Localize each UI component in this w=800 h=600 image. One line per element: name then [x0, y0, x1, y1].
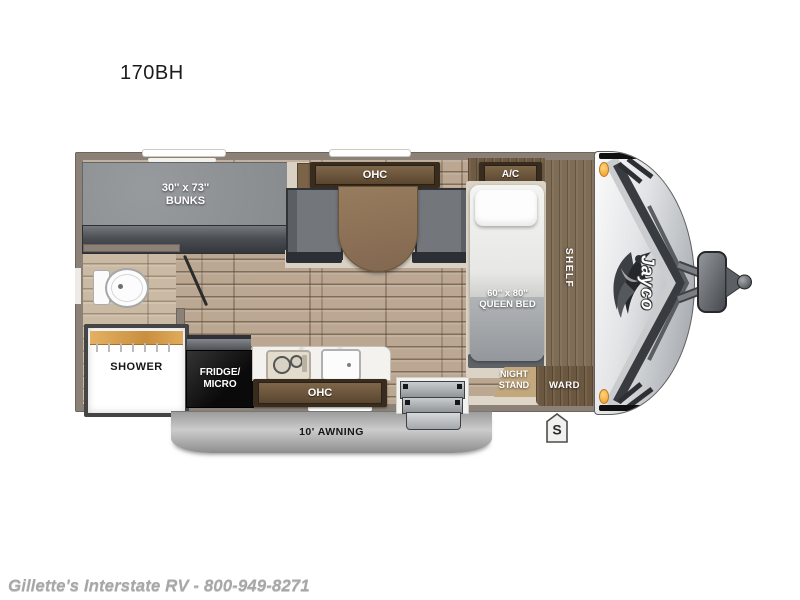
bathroom-wall: [83, 244, 180, 252]
shower-stall: SHOWER: [84, 324, 189, 417]
dinette-table: [338, 186, 418, 272]
step-hinge: [405, 400, 410, 405]
dealer-watermark: Gillette's Interstate RV - 800-949-8271: [8, 576, 310, 596]
queen-mattress: [470, 185, 544, 361]
stove-burner-large: [273, 356, 291, 374]
brand-logo-text: Jayco: [637, 255, 658, 311]
queen-bed-label: 60'' x 80'' QUEEN BED: [470, 288, 545, 310]
kitchen-sink: [321, 349, 361, 381]
bunks-mattress: 30'' x 73'' BUNKS: [82, 162, 289, 227]
dinette-bench-right-base: [412, 252, 468, 263]
sink-drain: [347, 363, 351, 367]
fridge-label: FRIDGE/ MICRO: [200, 367, 241, 391]
kitchen-overhead-cabinet: OHC: [253, 379, 387, 407]
dinette-bench-left: [286, 188, 343, 260]
awning-label: 10' AWNING: [299, 426, 364, 438]
ward-label: WARD: [549, 380, 580, 391]
window-top-center: [330, 150, 410, 156]
nightstand-label: NIGHT STAND: [488, 369, 540, 390]
marker-light-top: [599, 162, 609, 177]
kitchen-ohc-label: OHC: [258, 382, 382, 404]
hitch-assembly: [676, 243, 756, 321]
step-hinge: [457, 384, 462, 389]
dinette-bench-left-base: [286, 252, 342, 263]
wardrobe: WARD: [536, 366, 593, 406]
toilet-bowl: [105, 268, 149, 308]
shower-label: SHOWER: [88, 361, 185, 374]
step-hinge: [455, 400, 460, 405]
stove-cooktop: [266, 350, 311, 381]
hitch-coupler-box: [698, 252, 726, 312]
s-badge: S: [546, 413, 568, 443]
page-title: 170BH: [120, 62, 184, 85]
toilet-bowl-inner: [111, 274, 143, 302]
toilet-drain: [118, 284, 123, 289]
stove-control-strip: [302, 355, 307, 372]
shelf-label: SHELF: [562, 248, 574, 288]
window-top-left: [143, 150, 225, 156]
cap-band-bottom: [599, 405, 661, 411]
floorplan-page: 170BH 30'' x 73'' BUNKS OHC A/C 6: [0, 0, 800, 600]
hitch-ball: [738, 275, 752, 289]
bed-pillow: [475, 190, 537, 226]
window-left-wall: [75, 268, 81, 304]
entry-step-3: [406, 412, 461, 430]
marker-light-bottom: [599, 389, 609, 404]
cap-band-top: [599, 153, 661, 159]
fridge-micro-unit: FRIDGE/ MICRO: [186, 350, 254, 408]
bunks-label: 30'' x 73'' BUNKS: [162, 182, 209, 208]
shower-hooks: [94, 343, 181, 353]
dinette-bench-right: [415, 188, 472, 260]
dinette-overhead-cabinet: OHC: [310, 162, 440, 188]
dinette-ohc-label: OHC: [315, 165, 435, 185]
step-hinge: [403, 384, 408, 389]
fridge-counter-lip: [187, 339, 251, 350]
s-badge-letter: S: [552, 422, 561, 438]
